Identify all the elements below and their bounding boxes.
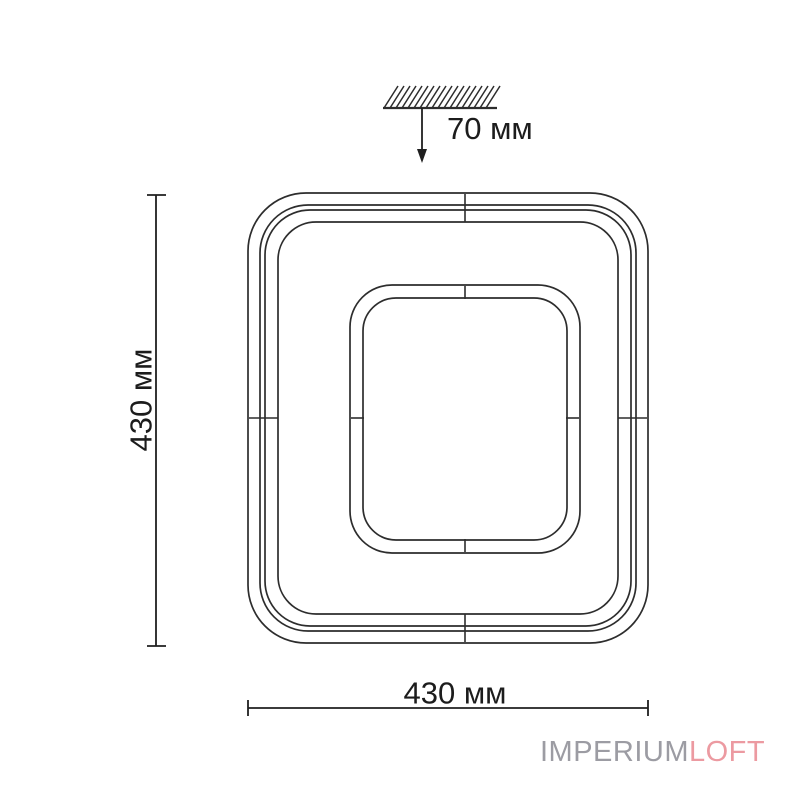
watermark-accent-text: LOFT xyxy=(689,736,765,768)
watermark: IMPERIUMLOFT xyxy=(540,738,765,767)
ceiling-mount-symbol xyxy=(383,86,500,108)
dimension-drawing xyxy=(0,0,800,800)
ceiling-offset-label: 70 мм xyxy=(447,113,533,144)
down-arrow-icon xyxy=(417,108,427,163)
product-dimension-diagram: 70 мм 430 мм 430 мм IMPERIUMLOFT xyxy=(0,0,800,800)
watermark-primary-text: IMPERIUM xyxy=(540,736,689,768)
height-label: 430 мм xyxy=(126,349,157,452)
fixture-outer-frame xyxy=(248,193,648,643)
outer-frame-seam-marks xyxy=(249,194,647,642)
ceiling-hatch-lines xyxy=(384,86,500,108)
inner-frame-seam-marks xyxy=(351,286,579,552)
width-label: 430 мм xyxy=(404,678,507,709)
fixture-inner-frame xyxy=(350,285,580,553)
